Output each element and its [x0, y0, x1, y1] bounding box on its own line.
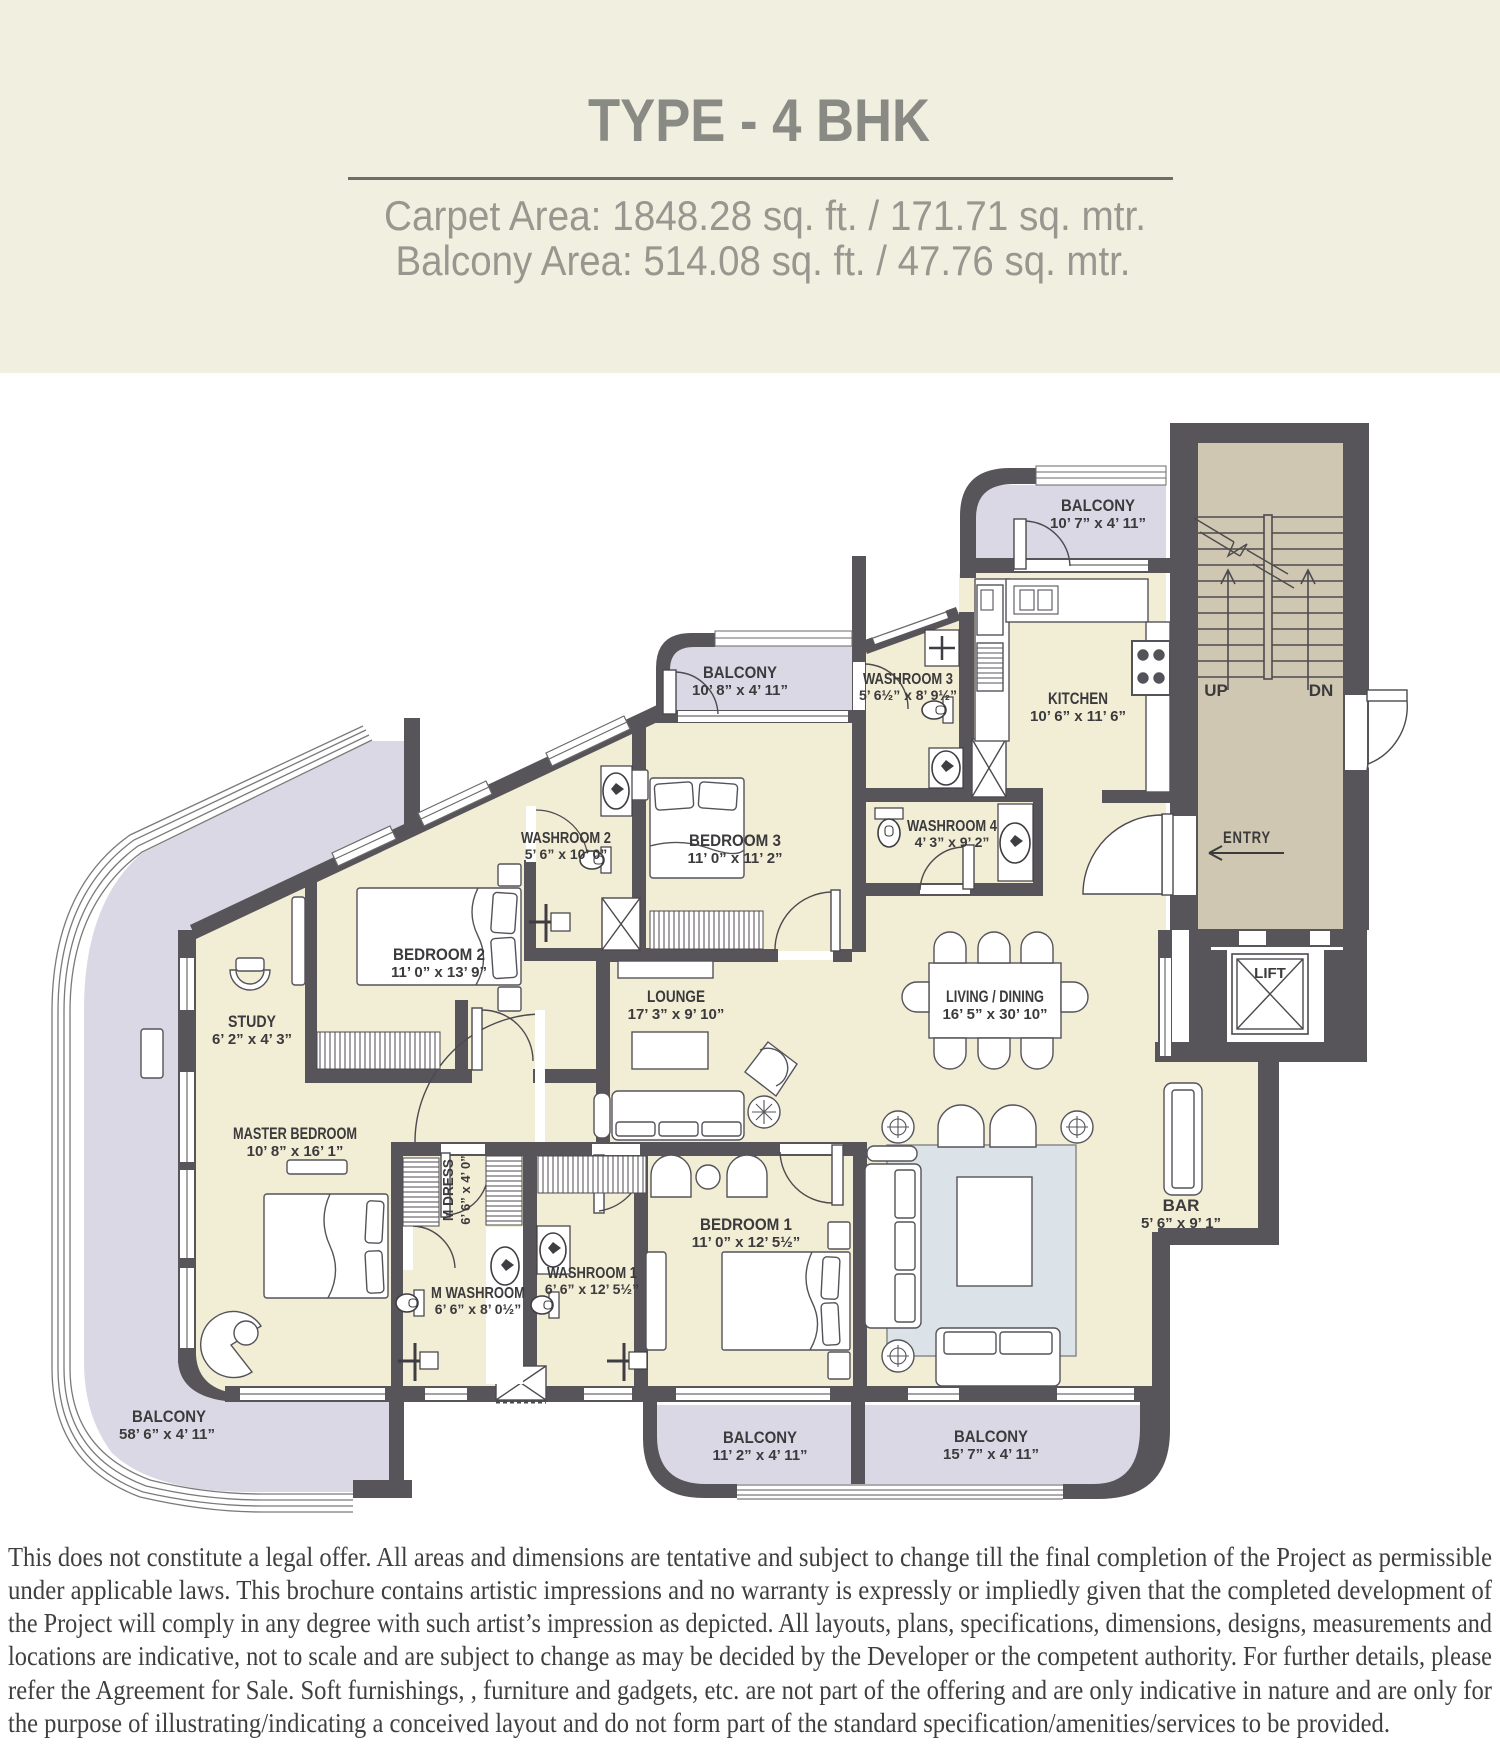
svg-text:WASHROOM 2: WASHROOM 2	[521, 830, 611, 847]
svg-text:WASHROOM 4: WASHROOM 4	[907, 818, 997, 835]
svg-text:17’ 3” x 9’ 10”: 17’ 3” x 9’ 10”	[628, 1006, 725, 1023]
svg-text:ENTRY: ENTRY	[1223, 828, 1271, 847]
svg-text:6’ 6” x 4’ 0”: 6’ 6” x 4’ 0”	[458, 1155, 473, 1224]
svg-text:MASTER BEDROOM: MASTER BEDROOM	[233, 1124, 357, 1143]
svg-text:58’ 6” x 4’ 11”: 58’ 6” x 4’ 11”	[119, 1426, 215, 1443]
svg-text:4’ 3” x 9’ 2”: 4’ 3” x 9’ 2”	[915, 834, 990, 850]
svg-text:11’ 0” x 11’ 2”: 11’ 0” x 11’ 2”	[687, 850, 782, 867]
svg-text:refer the Agreement for Sale.: refer the Agreement for Sale. Soft furni…	[8, 1675, 1492, 1705]
svg-text:the Project will comply in any: the Project will comply in any degree wi…	[8, 1608, 1492, 1638]
svg-text:6’ 2” x 4’ 3”: 6’ 2” x 4’ 3”	[212, 1031, 292, 1048]
svg-text:BALCONY: BALCONY	[1061, 496, 1136, 515]
svg-text:under applicable laws. This br: under applicable laws. This brochure con…	[8, 1575, 1492, 1605]
svg-text:BEDROOM 3: BEDROOM 3	[689, 831, 781, 850]
svg-text:LIVING / DINING: LIVING / DINING	[946, 987, 1044, 1006]
svg-text:15’ 7” x 4’ 11”: 15’ 7” x 4’ 11”	[943, 1446, 1039, 1463]
svg-text:KITCHEN: KITCHEN	[1048, 689, 1108, 708]
svg-text:10’ 8” x 4’ 11”: 10’ 8” x 4’ 11”	[692, 682, 788, 699]
svg-text:BEDROOM 1: BEDROOM 1	[700, 1215, 792, 1234]
svg-text:16’ 5” x 30’ 10”: 16’ 5” x 30’ 10”	[942, 1006, 1047, 1023]
svg-text:5’ 6” x 9’ 1”: 5’ 6” x 9’ 1”	[1141, 1215, 1221, 1232]
svg-text:LOUNGE: LOUNGE	[647, 987, 705, 1006]
svg-text:locations are indicative, not: locations are indicative, not to scale a…	[8, 1641, 1492, 1671]
svg-text:6’ 6” x 8’ 0½”: 6’ 6” x 8’ 0½”	[435, 1301, 521, 1317]
svg-text:10’ 6” x 11’ 6”: 10’ 6” x 11’ 6”	[1030, 708, 1126, 725]
svg-text:WASHROOM 1: WASHROOM 1	[547, 1265, 637, 1282]
svg-text:6’ 6” x 12’ 5½”: 6’ 6” x 12’ 5½”	[545, 1281, 639, 1297]
svg-text:BALCONY: BALCONY	[703, 663, 778, 682]
svg-text:DN: DN	[1309, 681, 1334, 700]
svg-text:STUDY: STUDY	[228, 1012, 277, 1031]
svg-text:10’ 8” x 16’ 1”: 10’ 8” x 16’ 1”	[247, 1143, 344, 1160]
svg-text:BALCONY: BALCONY	[723, 1428, 798, 1447]
svg-text:5’ 6” x 10’ 0”: 5’ 6” x 10’ 0”	[525, 846, 608, 862]
svg-text:10’ 7” x 4’ 11”: 10’ 7” x 4’ 11”	[1050, 515, 1146, 532]
svg-text:BALCONY: BALCONY	[132, 1407, 207, 1426]
svg-text:Carpet Area: 1848.28 sq. ft. /: Carpet Area: 1848.28 sq. ft. / 171.71 sq…	[384, 192, 1146, 239]
svg-text:11’ 0” x 13’ 9”: 11’ 0” x 13’ 9”	[391, 964, 487, 981]
svg-text:This does not constitute a leg: This does not constitute a legal offer. …	[8, 1542, 1492, 1572]
svg-text:BAR: BAR	[1163, 1196, 1200, 1215]
svg-text:UP: UP	[1204, 681, 1228, 700]
svg-text:BEDROOM 2: BEDROOM 2	[393, 945, 485, 964]
svg-text:11’ 0” x 12’ 5½”: 11’ 0” x 12’ 5½”	[692, 1234, 800, 1251]
svg-text:Balcony Area: 514.08 sq. ft. /: Balcony Area: 514.08 sq. ft. / 47.76 sq.…	[396, 237, 1131, 284]
svg-text:the purpose of illustrating/in: the purpose of illustrating/indicating a…	[8, 1708, 1390, 1738]
svg-text:M WASHROOM: M WASHROOM	[431, 1285, 525, 1302]
svg-text:TYPE - 4 BHK: TYPE - 4 BHK	[588, 87, 930, 154]
svg-text:BALCONY: BALCONY	[954, 1427, 1029, 1446]
svg-text:WASHROOM 3: WASHROOM 3	[863, 671, 953, 688]
svg-text:M DRESS: M DRESS	[440, 1159, 457, 1221]
svg-text:11’ 2” x 4’ 11”: 11’ 2” x 4’ 11”	[712, 1447, 807, 1464]
svg-text:5’ 6½” x 8’ 9½”: 5’ 6½” x 8’ 9½”	[859, 687, 957, 703]
svg-text:LIFT: LIFT	[1254, 965, 1286, 982]
